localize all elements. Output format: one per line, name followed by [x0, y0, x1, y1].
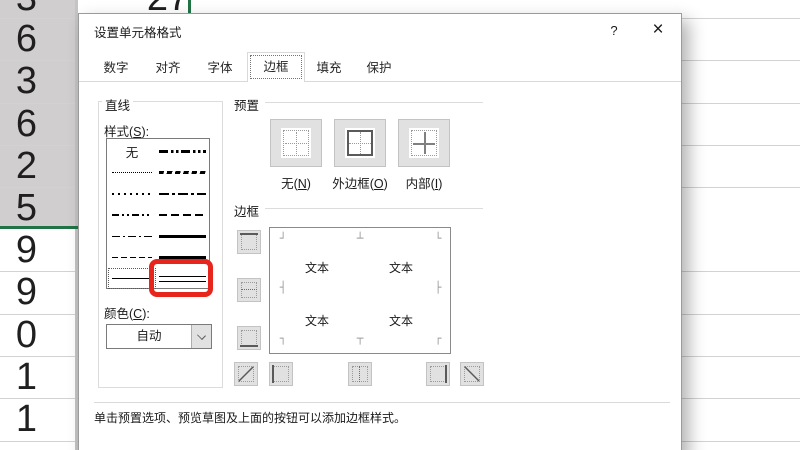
border-group-title: 边框 [231, 201, 262, 220]
line-style-dotted[interactable] [108, 183, 156, 204]
cell-value: 3 [0, 0, 37, 19]
label-pre: 内部( [406, 177, 435, 191]
border-right-icon [430, 366, 446, 382]
line-style-thick-solid[interactable] [156, 247, 208, 268]
line-style-none-label: 无 [126, 142, 139, 161]
label-key: N [298, 177, 307, 191]
hairline-dotted-line [112, 172, 152, 173]
border-inner-horizontal-icon [241, 282, 257, 298]
thin-solid-line [112, 278, 152, 280]
thick-solid-line [159, 256, 206, 260]
border-inner-horizontal-button[interactable] [237, 278, 261, 302]
tab-alignment[interactable]: 对齐 [144, 55, 192, 81]
label-post: ) [307, 177, 311, 191]
tab-number[interactable]: 数字 [92, 55, 140, 81]
color-dropdown[interactable]: 自动 [106, 324, 212, 349]
line-style-medium-dash-dot[interactable] [156, 183, 208, 204]
dialog-title: 设置单元格格式 [94, 22, 182, 41]
border-diagonal-down-icon [464, 366, 480, 382]
dash-dot-line [112, 236, 152, 238]
preview-text: 文本 [389, 312, 413, 329]
line-style-dash-dot[interactable] [108, 226, 156, 247]
label-pre: 无( [281, 177, 298, 191]
tab-fill[interactable]: 填充 [305, 55, 353, 81]
preview-text: 文本 [305, 259, 329, 276]
style-label-post: ): [142, 125, 150, 139]
cell-value: 6 [0, 103, 37, 145]
preview-corner-mark-top-right: └ [433, 234, 443, 244]
preset-none-button[interactable] [270, 119, 322, 167]
line-group-title: 直线 [102, 95, 133, 114]
line-style-slant-dash-dot[interactable] [156, 162, 208, 183]
style-label-key: S [133, 125, 141, 139]
border-group-rule [265, 208, 483, 209]
dash-dot-dot-line [112, 214, 152, 216]
preview-corner-mark-top-left: ┘ [278, 234, 288, 244]
border-top-icon [241, 234, 257, 250]
preview-corner-mark-bottom-left: ┐ [278, 334, 288, 344]
line-style-listbox[interactable]: 无 [106, 138, 210, 289]
selection-border-bottom [0, 226, 78, 229]
line-style-hairline-dotted[interactable] [108, 162, 156, 183]
selection-border-right [188, 0, 191, 14]
footer-divider [94, 402, 670, 403]
preset-inside-label: 内部(I) [386, 173, 462, 192]
border-right-button[interactable] [426, 362, 450, 386]
medium-dash-dot-line [159, 193, 206, 196]
preview-corner-mark-bottom-right: ┌ [433, 334, 443, 344]
color-dropdown-button[interactable] [191, 325, 211, 348]
cell-value: 1 [0, 398, 37, 440]
color-label-key: C [133, 307, 142, 321]
preview-corner-mark-bottom-center: ┬ [355, 334, 365, 344]
line-style-double[interactable] [156, 268, 208, 289]
tab-font[interactable]: 字体 [196, 55, 244, 81]
tab-border[interactable]: 边框 [247, 52, 305, 82]
border-inner-vertical-button[interactable] [348, 362, 372, 386]
cell-value: 2 [0, 145, 37, 187]
border-diagonal-up-button[interactable] [234, 362, 258, 386]
preset-inside-icon [409, 128, 439, 158]
close-icon[interactable]: × [645, 17, 671, 43]
tab-content-divider [79, 81, 681, 82]
color-dropdown-value: 自动 [107, 325, 191, 348]
preset-inside-button[interactable] [398, 119, 450, 167]
tab-protection[interactable]: 保护 [355, 55, 403, 81]
line-style-medium-dash-dot-dot[interactable] [156, 141, 208, 162]
dashed-line [112, 257, 152, 259]
double-line [159, 276, 206, 282]
style-label-pre: 样式( [104, 125, 133, 139]
cell-value: 9 [0, 271, 37, 313]
border-diagonal-down-button[interactable] [460, 362, 484, 386]
medium-solid-line [159, 235, 206, 238]
border-bottom-icon [241, 330, 257, 346]
color-label-pre: 颜色( [104, 307, 133, 321]
medium-dashed-line [159, 214, 206, 217]
preview-text: 文本 [389, 259, 413, 276]
slant-dash-dot-line [159, 171, 206, 174]
line-style-thin-solid-selected[interactable] [108, 268, 156, 289]
preview-text: 文本 [305, 312, 329, 329]
label-pre: 外边框( [332, 177, 374, 191]
preview-corner-mark-mid-right: ├ [433, 283, 443, 293]
color-label-post: ): [142, 307, 150, 321]
dotted-line [112, 193, 152, 195]
label-key: O [374, 177, 384, 191]
border-bottom-button[interactable] [237, 326, 261, 350]
line-style-dash-dot-dot[interactable] [108, 205, 156, 226]
format-cells-dialog: 设置单元格格式 ? × 数字 对齐 字体 边框 填充 保护 直线 样式(S): … [78, 13, 682, 450]
presets-group-rule [265, 102, 483, 103]
label-post: ) [438, 177, 442, 191]
border-inner-vertical-icon [352, 366, 368, 382]
preset-none-label: 无(N) [266, 173, 326, 192]
footer-hint-text: 单击预置选项、预览草图及上面的按钮可以添加边框样式。 [94, 409, 406, 426]
presets-group-title: 预置 [231, 95, 262, 114]
border-diagonal-up-icon [238, 366, 254, 382]
border-top-button[interactable] [237, 230, 261, 254]
border-preview[interactable]: ┘ ┴ └ ┤ ├ ┐ ┬ ┌ 文本 文本 文本 文本 [269, 227, 451, 354]
preview-corner-mark-top-center: ┴ [355, 234, 365, 244]
chevron-down-icon [197, 331, 206, 340]
cell-value: 5 [0, 187, 37, 229]
cell-value: 6 [0, 18, 37, 60]
color-label: 颜色(C): [104, 303, 150, 322]
border-left-icon [273, 366, 289, 382]
border-left-button[interactable] [269, 362, 293, 386]
cell-value: 1 [0, 356, 37, 398]
cell-value: 0 [0, 314, 37, 356]
preset-none-icon [281, 128, 311, 158]
medium-dash-dot-dot-line [159, 150, 206, 153]
line-style-medium-dashed[interactable] [156, 205, 208, 226]
line-style-medium-solid[interactable] [156, 226, 208, 247]
line-style-none[interactable]: 无 [108, 141, 156, 162]
cell-value: 3 [0, 60, 37, 102]
cell-value: 9 [0, 229, 37, 271]
preview-corner-mark-mid-left: ┤ [278, 283, 288, 293]
line-style-dashed[interactable] [108, 247, 156, 268]
preset-outline-icon [345, 128, 375, 158]
help-icon[interactable]: ? [603, 20, 625, 42]
preset-outline-button[interactable] [334, 119, 386, 167]
